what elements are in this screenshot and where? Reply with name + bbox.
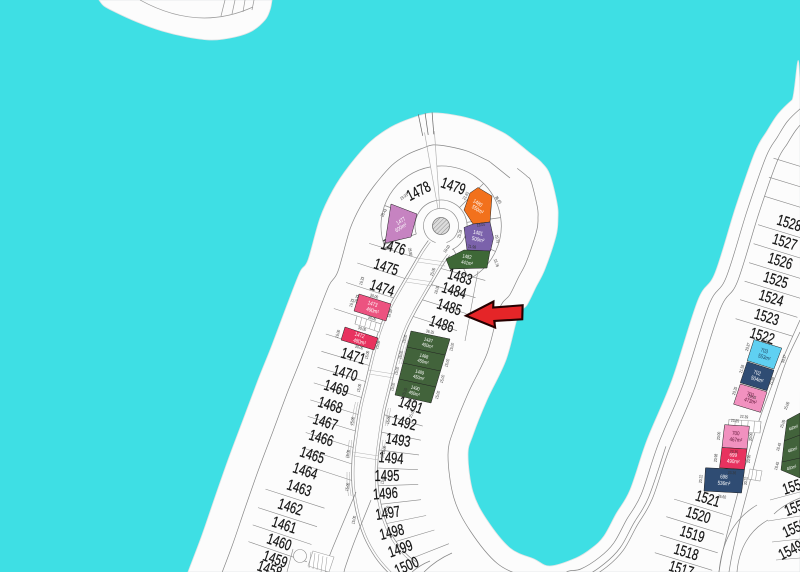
svg-text:30.00: 30.00	[748, 433, 753, 442]
svg-text:1496: 1496	[372, 484, 398, 503]
svg-text:23.35: 23.35	[731, 418, 740, 423]
svg-text:22.39: 22.39	[740, 414, 749, 419]
svg-text:20.00: 20.00	[716, 432, 721, 441]
svg-text:30.22: 30.22	[743, 477, 748, 486]
svg-text:1495: 1495	[375, 467, 400, 484]
svg-text:20.98: 20.98	[713, 454, 718, 463]
svg-text:23.36: 23.36	[728, 471, 737, 476]
svg-text:467m²: 467m²	[729, 437, 742, 445]
svg-text:23.35: 23.35	[730, 449, 739, 454]
svg-text:20.90: 20.90	[746, 455, 751, 464]
svg-text:490m²: 490m²	[727, 458, 740, 466]
svg-text:20.22: 20.22	[698, 475, 703, 484]
svg-text:536m²: 536m²	[717, 480, 730, 488]
